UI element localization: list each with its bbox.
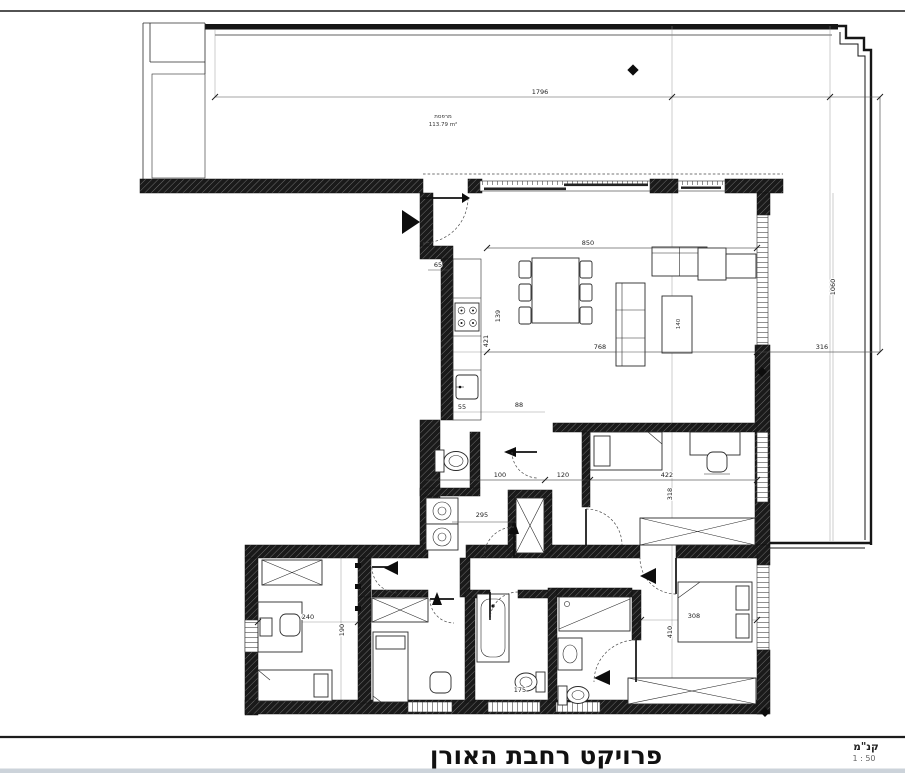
dim-wc-b: 88 bbox=[515, 401, 523, 409]
dim-master-depth: 410 bbox=[666, 626, 674, 638]
laundry-closet bbox=[426, 498, 458, 550]
living-right-window bbox=[757, 215, 768, 345]
dim-hall-b: 120 bbox=[557, 471, 569, 479]
stove-icon bbox=[455, 303, 479, 331]
shower-icon bbox=[559, 597, 630, 631]
wardrobe-crossed bbox=[628, 678, 756, 704]
floor-plan-drawing: מרפסת 113.79 m² bbox=[0, 0, 905, 773]
dim-master-width: 308 bbox=[688, 612, 700, 620]
footer-strip bbox=[0, 769, 905, 773]
kitchen-window bbox=[678, 181, 725, 191]
dim-bath: 175 bbox=[514, 686, 526, 694]
dim-living-depth: 768 bbox=[594, 343, 606, 351]
bedroom1-window bbox=[757, 432, 768, 502]
coffee-table: 140 bbox=[662, 296, 692, 353]
bedroom2-left-window bbox=[245, 620, 258, 652]
dim-wc-a: 55 bbox=[458, 403, 466, 411]
dim-terrace-width: 1796 bbox=[532, 88, 549, 96]
dim-terrace-height: 1060 bbox=[829, 279, 837, 296]
wardrobe-crossed bbox=[262, 560, 322, 585]
dining-chair bbox=[580, 307, 592, 324]
project-title: פרויקט רחבת האורן bbox=[430, 741, 662, 770]
hall-closet-crossed bbox=[516, 498, 544, 553]
desk bbox=[258, 602, 302, 652]
bathroom-sink-icon bbox=[558, 638, 582, 670]
terrace-top-rail bbox=[205, 24, 838, 30]
dining-chair bbox=[580, 284, 592, 301]
sofa-three-seat bbox=[616, 283, 645, 366]
dim-entry-niche: 65 bbox=[434, 261, 442, 269]
toilet-icon bbox=[558, 686, 589, 705]
dim-kitchen-depth: 139 bbox=[494, 310, 502, 322]
coffee-table-dim: 140 bbox=[676, 318, 682, 329]
dining-chair bbox=[580, 261, 592, 278]
terrace-name-label: מרפסת bbox=[434, 114, 452, 120]
desk-chair bbox=[707, 452, 727, 472]
dining-table bbox=[519, 258, 592, 324]
bed-single bbox=[590, 432, 662, 470]
scale-label: קנ"מ bbox=[853, 741, 879, 753]
dim-living-width: 850 bbox=[582, 239, 594, 247]
dim-bedroom2-depth: 190 bbox=[338, 624, 346, 636]
dim-terrace-side: 316 bbox=[816, 343, 828, 351]
dining-chair bbox=[519, 284, 531, 301]
dryer-icon bbox=[426, 524, 458, 550]
desk-chair bbox=[280, 614, 300, 636]
bathtub-icon bbox=[477, 594, 509, 662]
dim-hall-a: 100 bbox=[494, 471, 506, 479]
scale-value: 1 : 50 bbox=[852, 754, 875, 763]
dim-kitchen-len: 421 bbox=[482, 335, 490, 347]
dim-bedroom1-width: 422 bbox=[661, 471, 673, 479]
wardrobe-crossed bbox=[640, 518, 755, 545]
master-right-window bbox=[757, 565, 769, 650]
toilet-icon bbox=[435, 450, 468, 472]
bed-single bbox=[258, 670, 332, 701]
terrace-area-label: 113.79 m² bbox=[429, 121, 458, 128]
wardrobe-crossed bbox=[372, 598, 428, 622]
bottom-windows bbox=[408, 702, 600, 712]
dining-chair bbox=[519, 261, 531, 278]
dim-bedroom1-depth: 318 bbox=[666, 488, 674, 500]
chair bbox=[430, 672, 451, 693]
floor-plan-page: מרפסת 113.79 m² bbox=[0, 0, 905, 773]
dim-bedroom2-width: 240 bbox=[302, 613, 314, 621]
living-room-sliding-window bbox=[480, 181, 650, 191]
bed-single bbox=[373, 632, 408, 702]
dining-chair bbox=[519, 307, 531, 324]
washing-machine-icon bbox=[426, 498, 458, 524]
kitchen-sink-icon bbox=[456, 375, 478, 399]
guest-wc bbox=[435, 450, 468, 472]
dim-closet: 295 bbox=[476, 511, 488, 519]
